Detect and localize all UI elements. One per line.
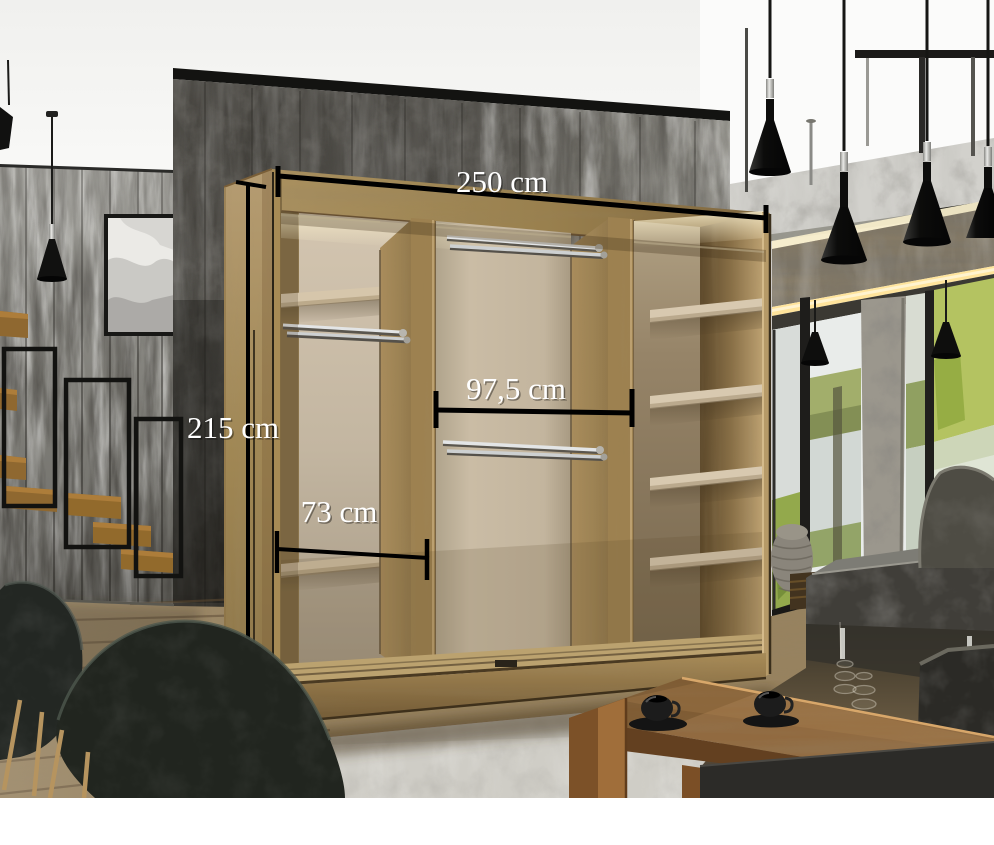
svg-text:250 cm: 250 cm	[456, 164, 548, 199]
svg-text:215 cm: 215 cm	[187, 410, 279, 445]
svg-text:97,5 cm: 97,5 cm	[466, 371, 566, 406]
svg-text:73 cm: 73 cm	[301, 494, 378, 529]
